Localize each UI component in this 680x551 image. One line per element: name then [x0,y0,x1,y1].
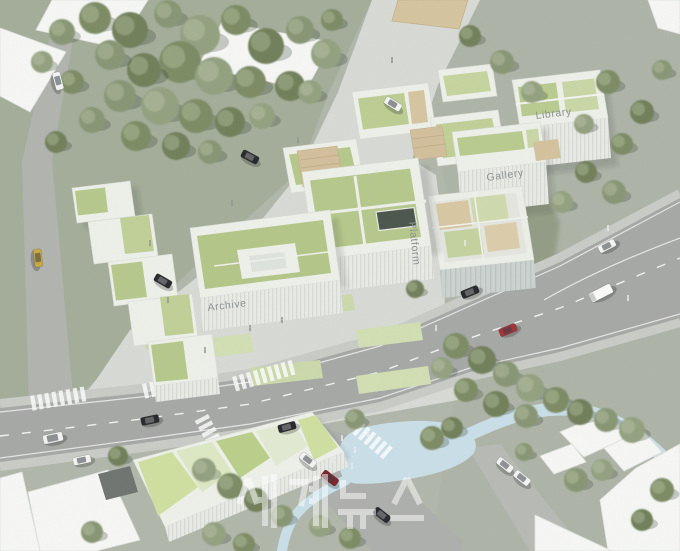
architectural-rendering: Library Gallery [0,0,680,551]
texture-overlay [0,0,680,551]
masterplan-aerial-view: Library Gallery [0,0,680,551]
